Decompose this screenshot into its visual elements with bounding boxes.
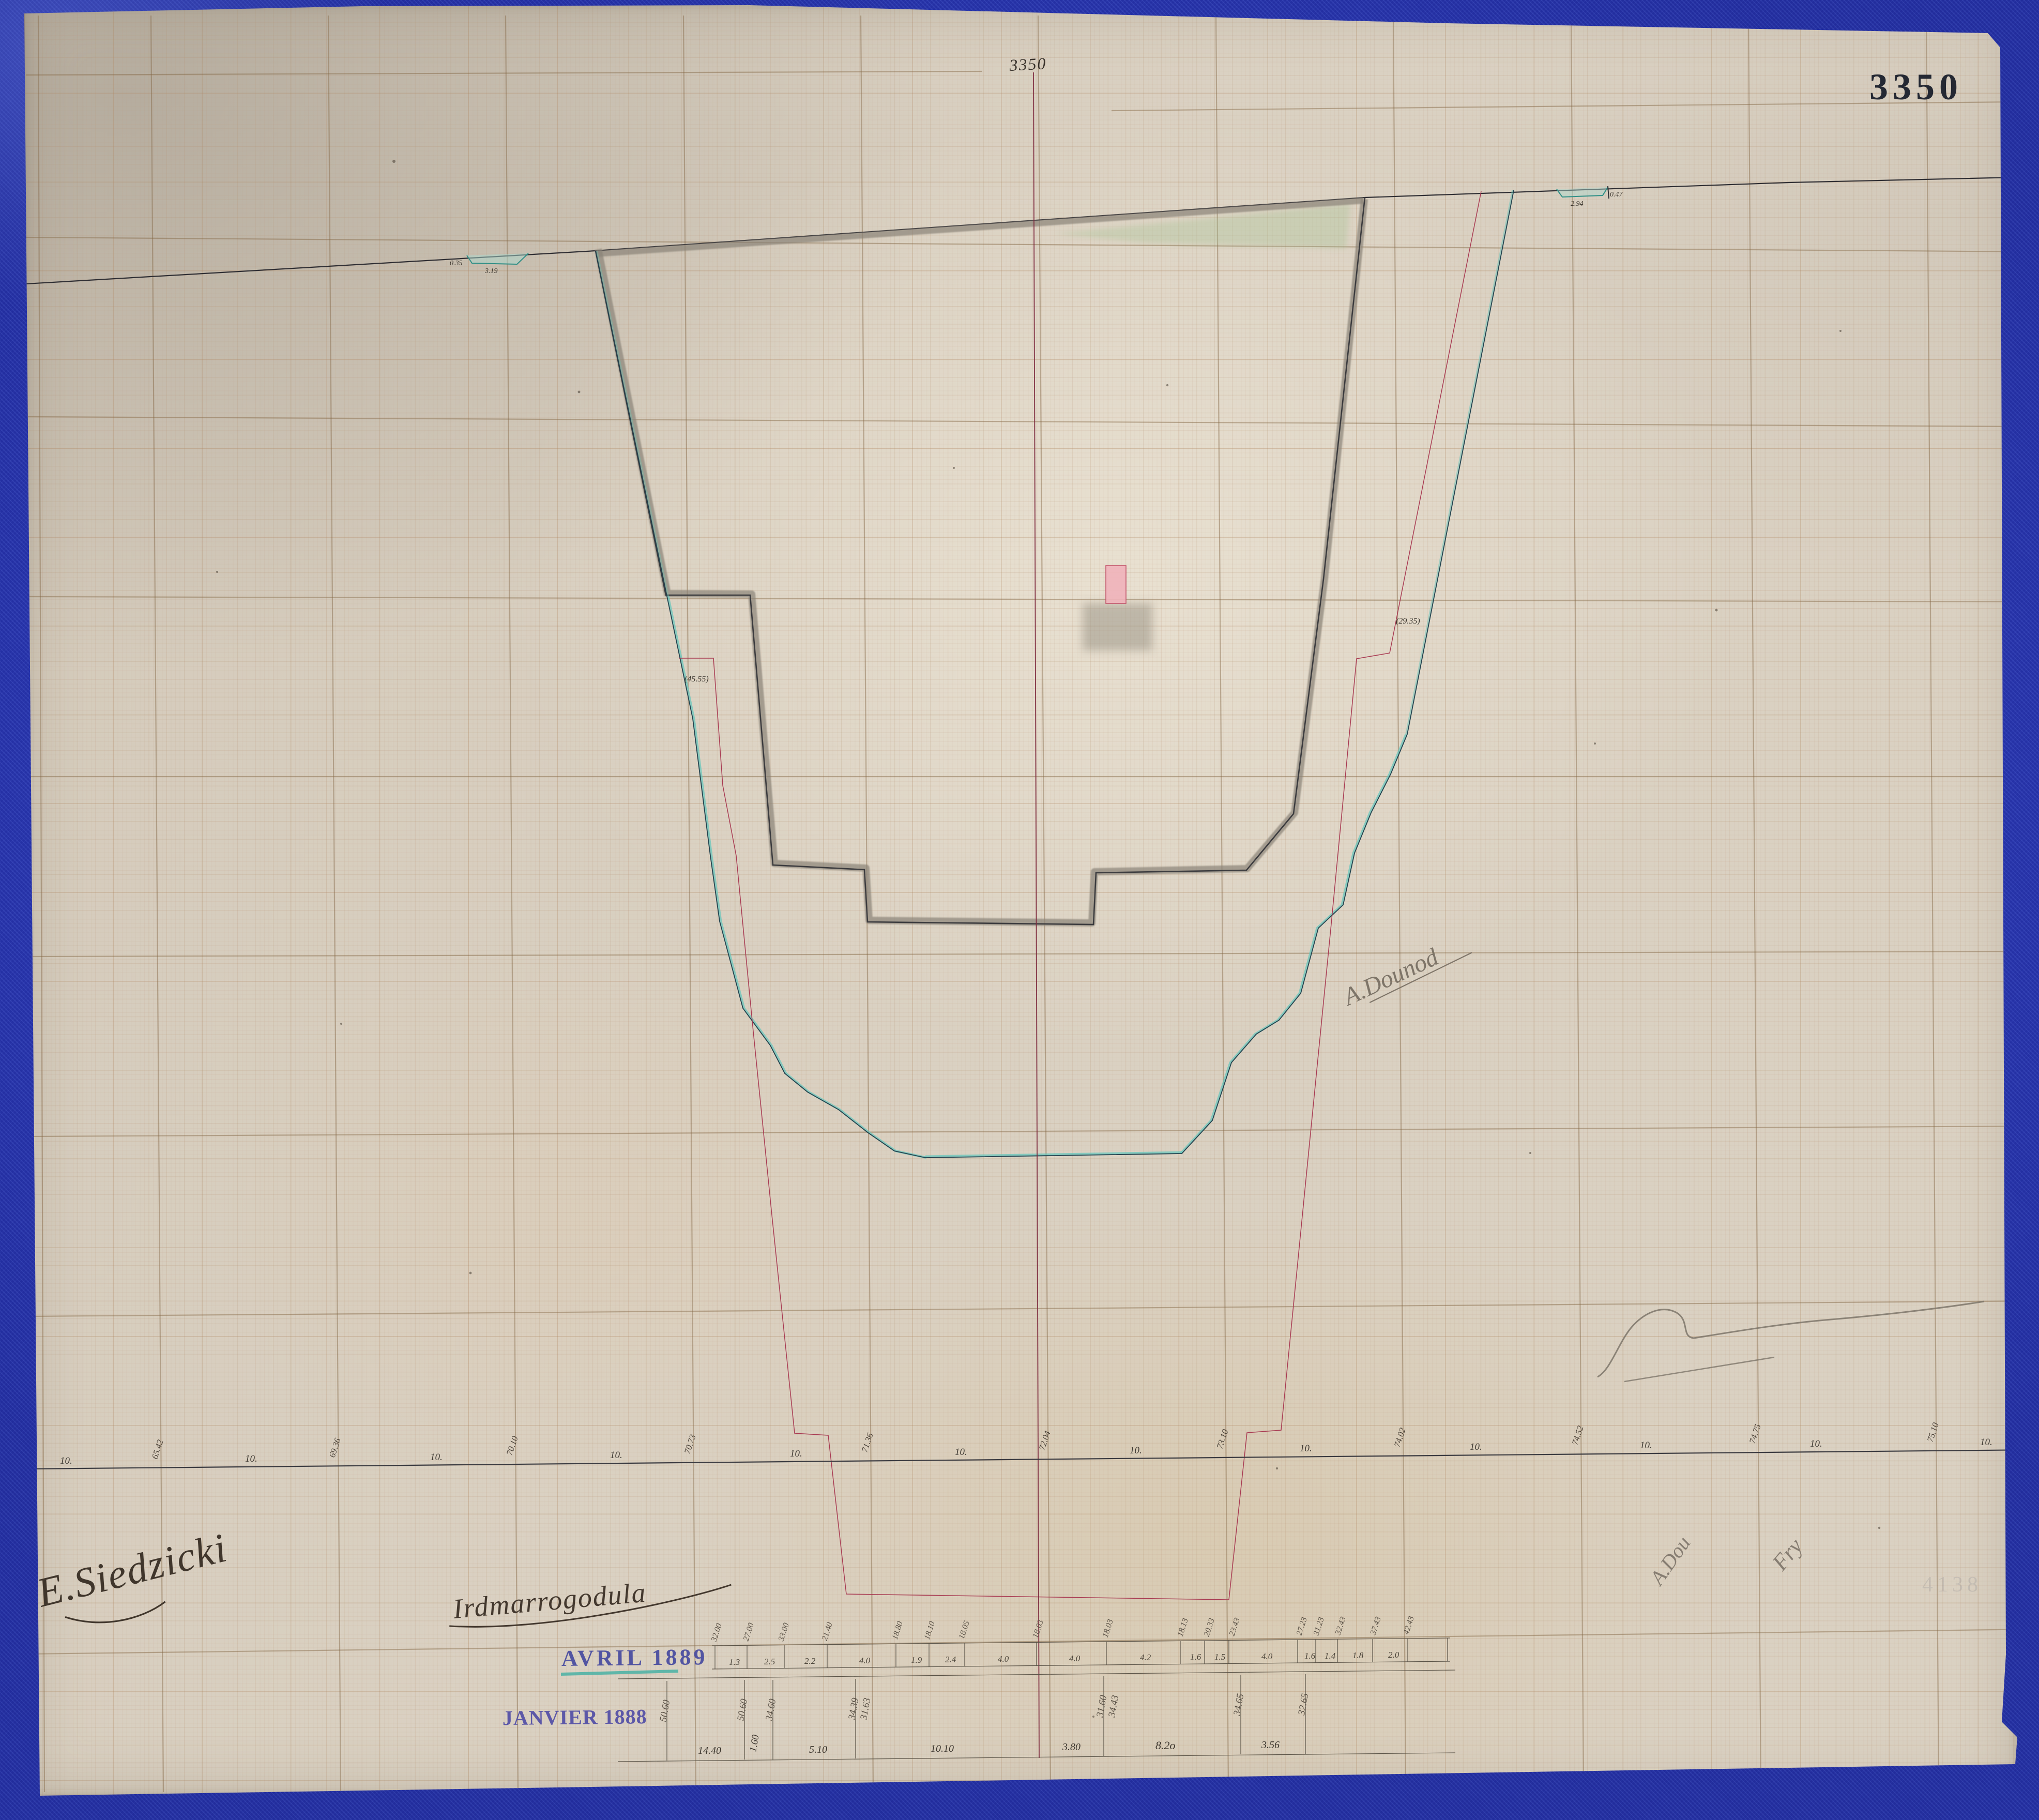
svg-text:14.40: 14.40 (698, 1745, 721, 1756)
svg-text:18.05: 18.05 (957, 1620, 971, 1640)
svg-text:Irdmarrogodula: Irdmarrogodula (451, 1576, 648, 1625)
svg-text:10.: 10. (955, 1447, 967, 1458)
svg-text:10.: 10. (790, 1448, 802, 1459)
svg-text:1.6: 1.6 (1190, 1652, 1201, 1662)
svg-text:18.13: 18.13 (1176, 1617, 1190, 1637)
svg-text:33.00: 33.00 (777, 1622, 791, 1643)
svg-text:50.60: 50.60 (658, 1699, 672, 1723)
svg-text:3350: 3350 (1008, 54, 1047, 74)
svg-text:65.42: 65.42 (150, 1438, 165, 1461)
svg-text:1.6: 1.6 (1304, 1651, 1316, 1661)
svg-text:10.: 10. (1980, 1437, 1992, 1448)
svg-text:(29.35): (29.35) (1396, 617, 1420, 626)
svg-text:0.47: 0.47 (1610, 191, 1623, 199)
svg-text:4.2: 4.2 (1140, 1652, 1151, 1662)
svg-text:0.35: 0.35 (450, 260, 463, 267)
svg-text:A.Dou: A.Dou (1645, 1532, 1695, 1590)
svg-text:1.3: 1.3 (729, 1657, 740, 1667)
svg-text:4.0: 4.0 (998, 1654, 1009, 1664)
svg-text:3350: 3350 (1869, 66, 1962, 108)
svg-text:JANVIER 1888: JANVIER 1888 (503, 1705, 647, 1730)
svg-text:10.: 10. (1640, 1440, 1652, 1451)
svg-text:1.4: 1.4 (1325, 1651, 1336, 1661)
svg-text:71.36: 71.36 (860, 1432, 875, 1454)
svg-text:34.60: 34.60 (764, 1698, 778, 1722)
svg-text:18.03: 18.03 (1101, 1618, 1115, 1639)
svg-text:70.73: 70.73 (682, 1433, 698, 1455)
svg-text:10.: 10. (1810, 1438, 1822, 1449)
svg-text:AVRIL 1889: AVRIL 1889 (561, 1644, 708, 1671)
svg-text:10.: 10. (1300, 1443, 1312, 1454)
svg-text:8.2o: 8.2o (1155, 1739, 1176, 1752)
svg-text:3.19: 3.19 (484, 267, 498, 275)
svg-text:2.4: 2.4 (945, 1655, 956, 1664)
svg-text:1.60: 1.60 (748, 1734, 762, 1753)
svg-text:4.0: 4.0 (859, 1656, 871, 1665)
svg-text:18.10: 18.10 (923, 1620, 937, 1641)
svg-text:23.43: 23.43 (1228, 1617, 1242, 1637)
svg-text:69.36: 69.36 (327, 1437, 343, 1459)
svg-text:72.04: 72.04 (1037, 1430, 1053, 1452)
svg-text:10.: 10. (610, 1450, 622, 1461)
svg-text:10.: 10. (60, 1455, 72, 1466)
svg-text:74.75: 74.75 (1747, 1423, 1763, 1445)
svg-text:2.94: 2.94 (1571, 200, 1584, 208)
svg-text:31.23: 31.23 (1312, 1616, 1326, 1637)
svg-text:(45.55): (45.55) (684, 675, 709, 684)
svg-text:75.10: 75.10 (1925, 1421, 1941, 1444)
svg-text:27.23: 27.23 (1295, 1616, 1309, 1636)
svg-text:E.Siedzicki: E.Siedzicki (32, 1525, 232, 1616)
svg-text:1.5: 1.5 (1214, 1652, 1225, 1662)
svg-text:10.: 10. (1130, 1445, 1142, 1456)
svg-text:21.40: 21.40 (820, 1621, 834, 1642)
svg-text:18.80: 18.80 (891, 1620, 905, 1641)
svg-text:73.10: 73.10 (1215, 1428, 1230, 1450)
svg-text:Fry: Fry (1767, 1534, 1807, 1575)
svg-text:74.02: 74.02 (1392, 1427, 1408, 1449)
svg-text:20.33: 20.33 (1203, 1617, 1216, 1637)
svg-text:2.0: 2.0 (1388, 1650, 1399, 1660)
svg-text:4.0: 4.0 (1261, 1651, 1273, 1661)
svg-text:2.5: 2.5 (764, 1657, 775, 1666)
svg-text:1.8: 1.8 (1352, 1650, 1364, 1660)
svg-text:4.0: 4.0 (1069, 1654, 1081, 1663)
svg-text:32.00: 32.00 (709, 1622, 724, 1643)
svg-text:70.10: 70.10 (505, 1435, 520, 1457)
svg-text:27.00: 27.00 (742, 1622, 756, 1642)
svg-text:10.: 10. (245, 1453, 257, 1464)
svg-text:37.43: 37.43 (1368, 1616, 1383, 1636)
svg-text:10.: 10. (1470, 1442, 1482, 1452)
svg-text:50.60: 50.60 (735, 1698, 750, 1722)
svg-text:1.9: 1.9 (911, 1655, 922, 1665)
svg-text:74.52: 74.52 (1570, 1424, 1586, 1447)
svg-text:2.2: 2.2 (804, 1656, 816, 1666)
svg-text:10.: 10. (430, 1452, 443, 1463)
svg-text:4138: 4138 (1922, 1573, 1982, 1597)
svg-text:32.43: 32.43 (1333, 1616, 1348, 1636)
svg-text:5.10: 5.10 (809, 1744, 827, 1755)
svg-text:18.03: 18.03 (1031, 1619, 1045, 1639)
svg-text:34.65: 34.65 (1231, 1693, 1246, 1717)
svg-text:3.80: 3.80 (1062, 1741, 1081, 1753)
svg-text:32.65: 32.65 (1296, 1692, 1311, 1717)
svg-text:3.56: 3.56 (1261, 1739, 1280, 1751)
svg-text:10.10: 10.10 (931, 1743, 954, 1754)
